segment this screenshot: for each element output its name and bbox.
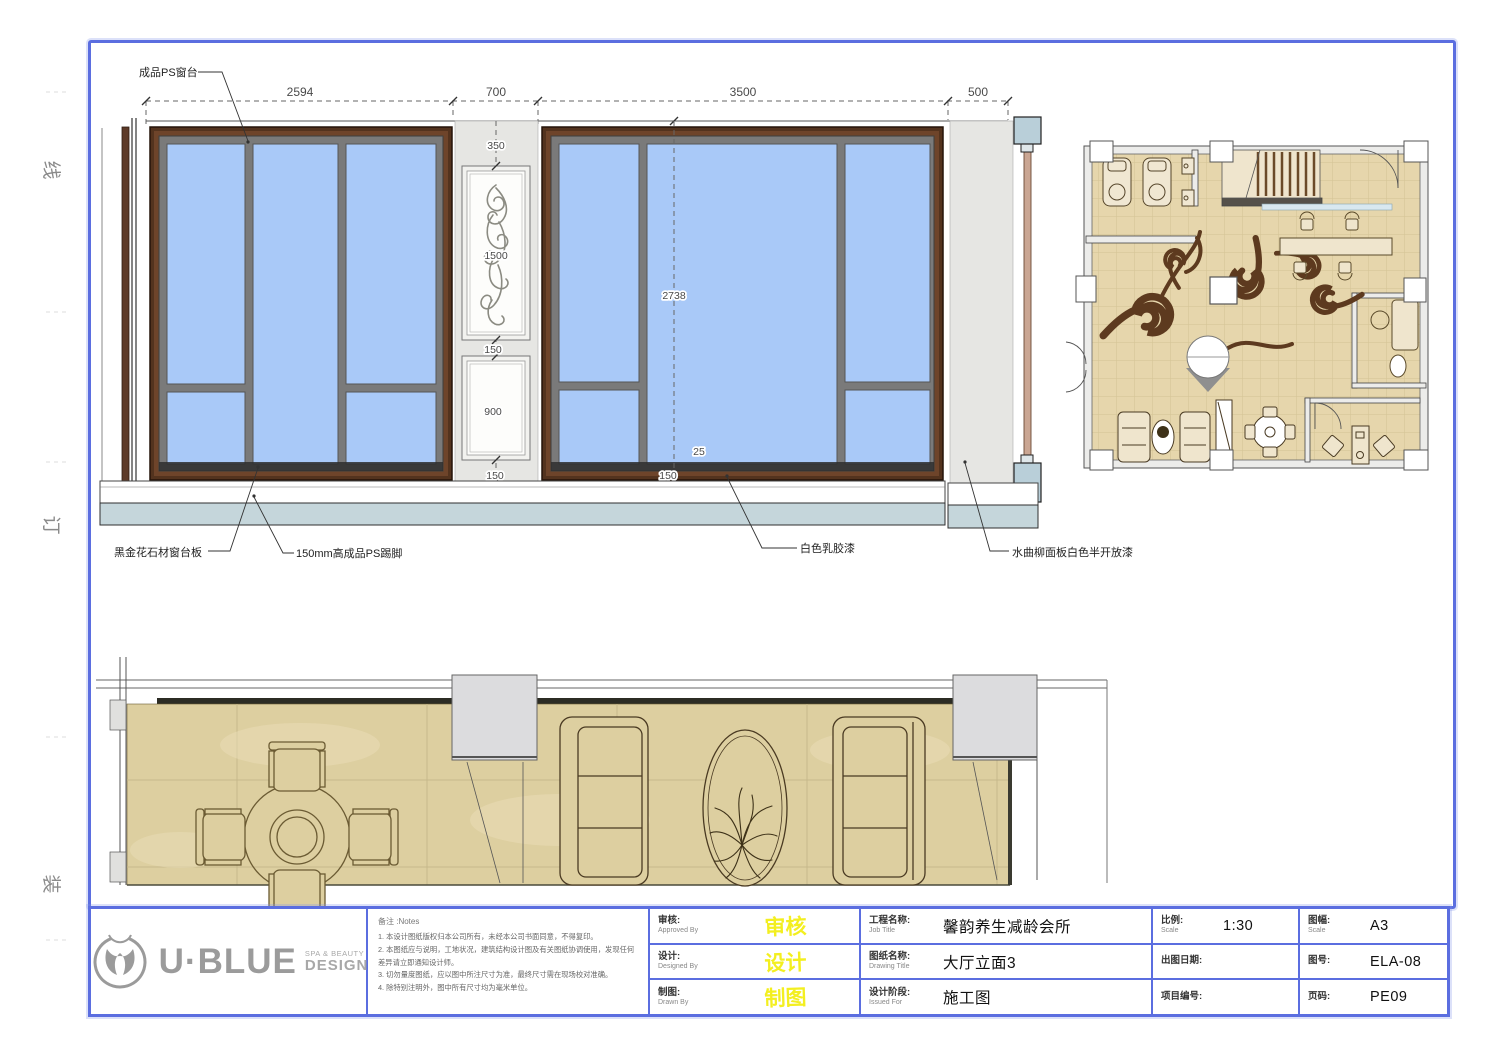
row-issued-for: 设计阶段:Issued For 施工图 [861, 980, 1151, 1014]
window-left-sill-shadow [159, 462, 443, 471]
label-designed-cn: 设计: [658, 952, 720, 963]
label-dwgno-cn: 图号: [1308, 956, 1370, 967]
drawing-sheet: 线 订 装 .dim{font:12px "Liberation Sans",s… [0, 0, 1500, 1061]
page-no-value: PE09 [1370, 989, 1407, 1005]
row-issue-date: 出图日期: [1153, 945, 1298, 981]
dim-500: 500 [968, 85, 988, 99]
row-drawn-by: 制图:Drawn By 制图 [650, 980, 859, 1014]
callout-paint: 白色乳胶漆 [800, 541, 855, 555]
callout-skirting: 150mm高成品PS踢脚 [296, 546, 402, 560]
dim-3500: 3500 [730, 85, 757, 99]
label-project-cn: 项目编号: [1161, 992, 1202, 1003]
row-approved-by: 审核:Approved By 审核 [650, 909, 859, 945]
dim-1500: 1500 [484, 250, 508, 262]
row-scale: 比例:Scale 1:30 [1153, 909, 1298, 945]
stairs [1222, 150, 1320, 198]
job-cell: 工程名称:Job Title 馨韵养生减龄会所 图纸名称:Drawing Tit… [861, 909, 1153, 1014]
dim-900: 900 [484, 406, 502, 418]
drawing-canvas: .dim{font:12px "Liberation Sans",sans-se… [0, 0, 1500, 1061]
left-wall-section [102, 118, 136, 503]
ash-panel-post [1014, 117, 1041, 502]
dim-25: 25 [693, 446, 705, 458]
sheet-cell: 图幅:Scale A3 图号: ELA-08 页码: PE09 [1300, 909, 1447, 1014]
row-project-no: 项目编号: [1153, 980, 1298, 1014]
row-drawing-title: 图纸名称:Drawing Title 大厅立面3 [861, 945, 1151, 981]
signature-approved: 审核 [720, 909, 852, 944]
strip-left-wall [110, 657, 126, 885]
label-issued-cn: 设计阶段: [869, 988, 931, 999]
window-right: 2738 25 150 150 [542, 121, 943, 507]
label-issued-en: Issued For [869, 999, 931, 1007]
strip-sofa-right [833, 717, 925, 885]
callout-ash-panel: 水曲柳面板白色半开放漆 [1012, 545, 1133, 559]
dim-700: 700 [486, 85, 506, 99]
label-designed-en: Designed By [658, 963, 720, 971]
note-line: 2. 本图纸应与说明，工地状况，建筑结构设计图及有关图纸协调使用，发现任何差异请… [378, 944, 638, 970]
callout-stone-sill: 黑金花石材窗台板 [114, 545, 202, 559]
row-drawing-no: 图号: ELA-08 [1300, 945, 1447, 981]
strip-planter [703, 730, 787, 886]
drawing-title-value: 大厅立面3 [943, 951, 1016, 973]
signatures-cell: 审核:Approved By 审核 设计:Designed By 设计 制图:D… [650, 909, 861, 1014]
label-page-cn: 页码: [1308, 992, 1370, 1003]
label-approved-en: Approved By [658, 927, 720, 935]
sheet-size-value: A3 [1370, 918, 1389, 934]
title-block: U·BLUE SPA & BEAUTY DESIGN 备注 :Notes 1. … [88, 906, 1450, 1017]
right-wall [950, 121, 1013, 503]
signature-designed: 设计 [720, 944, 852, 979]
row-designed-by: 设计:Designed By 设计 [650, 945, 859, 981]
dim-2738: 2738 [662, 290, 686, 302]
label-job-cn: 工程名称: [869, 916, 931, 927]
notes-cell: 备注 :Notes 1. 本设计图纸版权归本公司所有，未经本公司书面同意，不得复… [368, 909, 650, 1014]
dim-150-d: 150 [659, 470, 677, 482]
issued-for-value: 施工图 [943, 986, 991, 1008]
brand-sub2: DESIGN [305, 958, 369, 973]
bottom-plan-strip [96, 657, 1107, 919]
note-line: 1. 本设计图纸版权归本公司所有，未经本公司书面同意，不得复印。 [378, 931, 638, 944]
row-page-no: 页码: PE09 [1300, 980, 1447, 1014]
callout-ps-sill: 成品PS窗台 [139, 65, 198, 79]
strip-sofa-left [560, 717, 648, 885]
scale-value: 1:30 [1223, 918, 1253, 934]
label-approved-cn: 审核: [658, 916, 720, 927]
dim-2594: 2594 [287, 85, 314, 99]
brand-name: U·BLUE [159, 942, 297, 982]
label-job-en: Job Title [869, 927, 931, 935]
notes-heading: 备注 :Notes [378, 916, 638, 927]
elevation-drawing: 2594 700 3500 500 138 [100, 65, 1133, 560]
glass-partition [1262, 204, 1392, 210]
row-sheet-size: 图幅:Scale A3 [1300, 909, 1447, 945]
top-dimension-line: 2594 700 3500 500 [142, 85, 1012, 126]
job-title-value: 馨韵养生减龄会所 [943, 915, 1071, 937]
note-line: 3. 切勿量度图纸，应以图中所注尺寸为准，最终尺寸需在现场校对准确。 [378, 969, 638, 982]
dim-150-a: 150 [484, 344, 502, 356]
label-size-cn: 图幅: [1308, 916, 1370, 927]
label-size-en: Scale [1308, 927, 1370, 935]
row-job-title: 工程名称:Job Title 馨韵养生减龄会所 [861, 909, 1151, 945]
label-date-cn: 出图日期: [1161, 956, 1202, 967]
dim-350: 350 [487, 140, 505, 152]
label-scale-en: Scale [1161, 927, 1223, 935]
drawing-no-value: ELA-08 [1370, 954, 1421, 970]
label-drawn-cn: 制图: [658, 988, 720, 999]
ublue-logo-icon [89, 931, 151, 993]
fold-marks [46, 92, 66, 940]
floor-plan [1066, 141, 1428, 470]
center-pier: 350 1500 150 900 150 150 [455, 121, 538, 507]
signature-drawn: 制图 [720, 980, 852, 1015]
label-scale-cn: 比例: [1161, 916, 1223, 927]
logo-cell: U·BLUE SPA & BEAUTY DESIGN [91, 909, 368, 1014]
strip-wall-line [157, 698, 1012, 704]
label-drawn-en: Drawn By [658, 999, 720, 1007]
plan-column-center [1210, 277, 1237, 304]
sill-and-skirting [100, 481, 1038, 528]
note-line: 4. 除特别注明外，图中所有尺寸均为毫米单位。 [378, 982, 638, 995]
dim-150-b: 150 [486, 470, 504, 482]
label-drawing-cn: 图纸名称: [869, 952, 931, 963]
meta-cell: 比例:Scale 1:30 出图日期: 项目编号: [1153, 909, 1300, 1014]
window-left [150, 127, 452, 480]
label-drawing-en: Drawing Title [869, 963, 931, 971]
